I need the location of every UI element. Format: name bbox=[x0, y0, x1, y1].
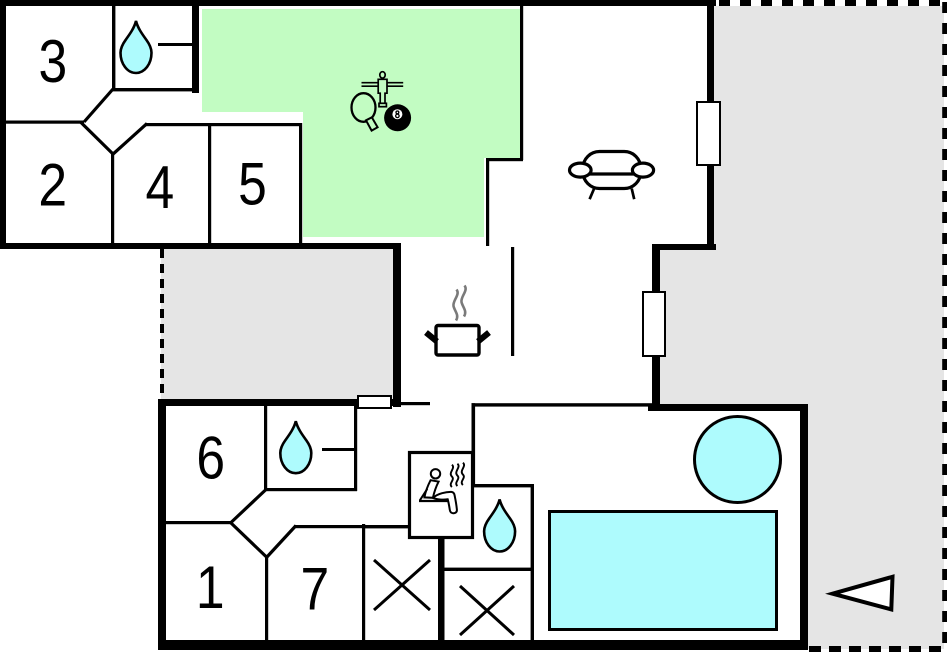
svg-text:4: 4 bbox=[146, 153, 175, 221]
svg-text:5: 5 bbox=[238, 150, 267, 218]
svg-text:2: 2 bbox=[38, 151, 67, 219]
svg-text:7: 7 bbox=[301, 555, 330, 623]
svg-text:1: 1 bbox=[196, 553, 225, 621]
svg-text:3: 3 bbox=[39, 27, 68, 95]
svg-text:6: 6 bbox=[196, 424, 225, 492]
